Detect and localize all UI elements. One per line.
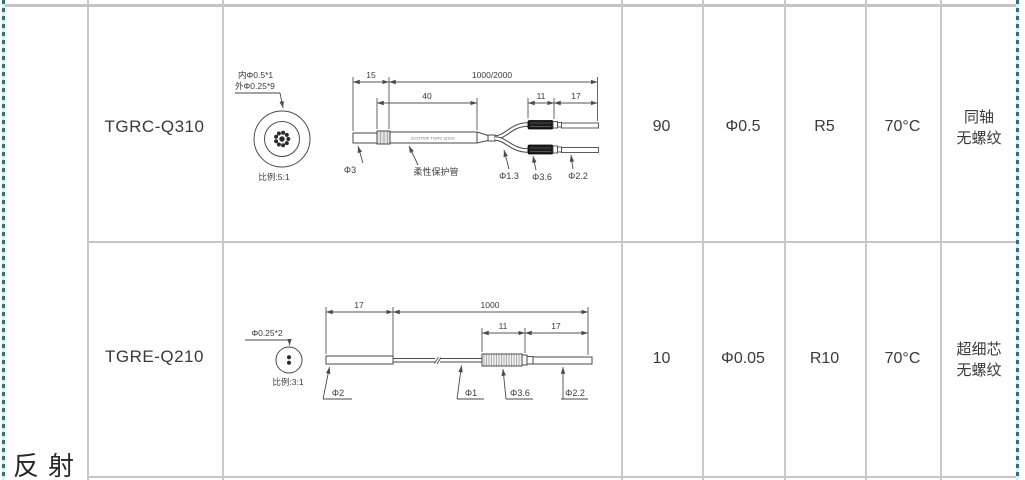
tgre-q210-diagram: Φ0.25*2 比例:3:1 bbox=[222, 242, 621, 477]
tube-marking: ECOTER TGRC-Q310 bbox=[411, 136, 455, 141]
cross-section bbox=[276, 347, 302, 373]
label-phi36: Φ3.6 bbox=[532, 172, 552, 182]
label-phi2: Φ2 bbox=[332, 388, 344, 398]
cell-temperature-row1: 70°C bbox=[865, 118, 940, 136]
label-phi1: Φ1 bbox=[465, 388, 477, 398]
label-tube: 柔性保护管 bbox=[413, 166, 458, 177]
cell-bend-radius-row2: R10 bbox=[784, 350, 865, 368]
knurl-hatch bbox=[484, 355, 519, 366]
cell-fiber-diameter-row1: Φ0.5 bbox=[702, 118, 784, 136]
tgrc-q310-diagram: 内Φ0.5*1 外Φ0.25*9 比例:5:1 ECOTER TGRC-Q310 bbox=[222, 5, 621, 242]
cell-model-row1: TGRC-Q310 bbox=[87, 117, 222, 137]
cell-model-row2: TGRE-Q210 bbox=[87, 347, 222, 367]
connector-upper bbox=[528, 121, 599, 130]
grid-vline-3 bbox=[621, 0, 623, 480]
dim-tip: 15 bbox=[366, 70, 376, 80]
cell-spec-row2: 超细芯 无螺纹 bbox=[940, 339, 1018, 381]
cell-core-count-row2: 10 bbox=[621, 350, 702, 368]
label-leaders bbox=[323, 366, 588, 400]
grid-vline-4 bbox=[702, 0, 704, 480]
dim-connector: 11 bbox=[537, 91, 546, 101]
label-phi36: Φ3.6 bbox=[510, 388, 530, 398]
callout-outer: 外Φ0.25*9 bbox=[235, 81, 275, 91]
grid-vline-5 bbox=[784, 0, 786, 480]
catalog-table: 反射 TGRC-Q310 90 Φ0.5 R5 70°C 同轴 无螺纹 TGRE… bbox=[0, 0, 1025, 480]
y-split-cables bbox=[495, 125, 528, 151]
spec-line-2: 无螺纹 bbox=[940, 360, 1018, 381]
cell-fiber-diameter-row2: Φ0.05 bbox=[702, 350, 784, 368]
grid-vline-1 bbox=[87, 0, 89, 480]
label-phi22: Φ2.2 bbox=[565, 388, 585, 398]
dim-tube: 40 bbox=[422, 91, 432, 101]
dim-cable: 1000 bbox=[481, 300, 500, 310]
scale-note: 比例:5:1 bbox=[258, 172, 289, 182]
callout: Φ0.25*2 bbox=[251, 328, 283, 338]
spec-line-1: 超细芯 bbox=[940, 339, 1018, 360]
dim-end: 17 bbox=[571, 91, 581, 101]
dim-end: 17 bbox=[551, 321, 561, 331]
spec-line-1: 同轴 bbox=[940, 107, 1018, 128]
cell-bend-radius-row1: R5 bbox=[784, 118, 865, 136]
cell-temperature-row2: 70°C bbox=[865, 350, 940, 368]
dim-connector: 11 bbox=[499, 321, 508, 331]
label-phi3: Φ3 bbox=[344, 165, 356, 175]
label-phi22: Φ2.2 bbox=[568, 171, 588, 181]
probe-body bbox=[326, 354, 592, 366]
section-label: 反射 bbox=[13, 446, 83, 480]
dimension-lines bbox=[326, 307, 588, 356]
cell-core-count-row1: 90 bbox=[621, 118, 702, 136]
dim-tip: 17 bbox=[354, 300, 364, 310]
dim-cable: 1000/2000 bbox=[472, 70, 512, 80]
grid-vline-7 bbox=[940, 0, 942, 480]
callout-inner: 内Φ0.5*1 bbox=[238, 70, 273, 80]
callout-leader bbox=[235, 93, 283, 108]
connector-lower bbox=[528, 145, 599, 154]
fiber-cluster bbox=[274, 131, 290, 147]
cell-spec-row1: 同轴 无螺纹 bbox=[940, 107, 1018, 149]
selection-marquee-right bbox=[1016, 0, 1019, 480]
spec-line-2: 无螺纹 bbox=[940, 128, 1018, 149]
scale-note: 比例:3:1 bbox=[272, 377, 303, 387]
grid-vline-6 bbox=[865, 0, 867, 480]
callout-leader bbox=[245, 340, 290, 346]
label-phi13: Φ1.3 bbox=[499, 171, 519, 181]
selection-marquee-left bbox=[2, 0, 5, 480]
